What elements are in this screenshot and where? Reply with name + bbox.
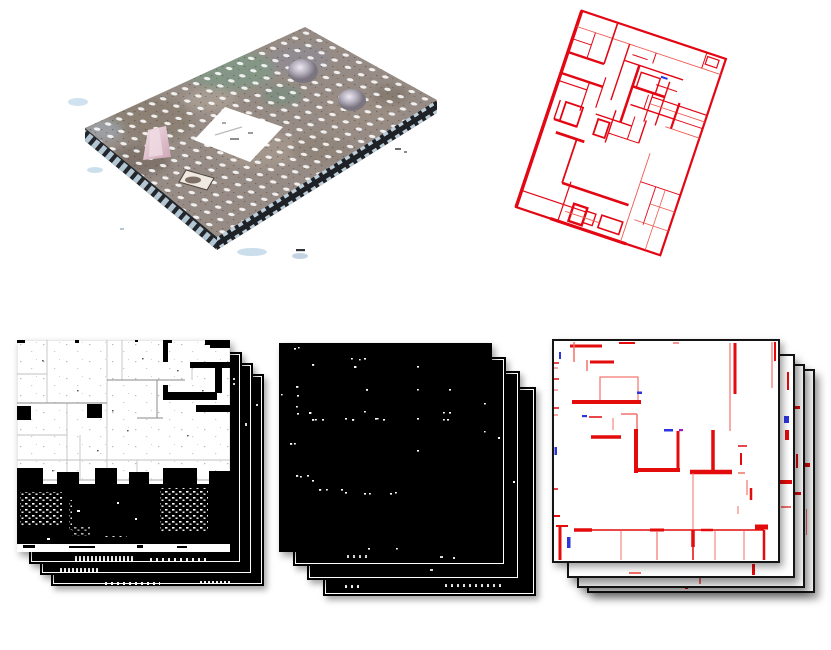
white-speckles: [150, 558, 210, 561]
red-wall-mark: [752, 564, 755, 575]
white-points: [513, 481, 515, 483]
white-points: [440, 556, 443, 558]
density-map-drawing: [17, 340, 230, 552]
red-wall-mark: [806, 509, 808, 535]
red-wall-mark: [785, 430, 789, 440]
white-speckles: [200, 581, 230, 584]
white-points: [347, 555, 369, 558]
purple-marker: [679, 429, 683, 431]
white-points: [498, 437, 500, 439]
white-speckles: [105, 582, 160, 585]
figure-canvas: [0, 0, 831, 650]
white-speckles: [233, 377, 235, 385]
floorplan-walls: [516, 11, 726, 256]
sparse-sheet-front: [279, 343, 492, 552]
black-square-mid: [87, 404, 102, 418]
red-wall-mark: [629, 572, 641, 574]
black-square-left: [17, 406, 31, 420]
red-wall-mark: [796, 454, 799, 468]
white-speckles: [60, 568, 100, 572]
white-points: [430, 569, 433, 571]
white-points: [445, 584, 503, 587]
red-wall-mark: [779, 480, 792, 484]
blue-marker: [784, 416, 789, 423]
sparse-map-drawing: [279, 343, 492, 552]
density-sheet-front: [17, 340, 230, 552]
floorplan-panel: [480, 0, 831, 285]
red-wall-mark: [787, 372, 790, 390]
white-points: [345, 585, 363, 588]
white-speckles: [245, 423, 247, 426]
wall-sheet-front: [552, 339, 780, 563]
blue-markers: [555, 352, 674, 548]
white-speckles: [256, 404, 258, 406]
red-wall-mark: [781, 506, 791, 508]
red-walls: [554, 342, 775, 560]
wall-map-drawing: [554, 341, 778, 561]
point-cloud-panel: [0, 0, 470, 285]
white-points: [453, 557, 455, 559]
white-speckles: [75, 556, 133, 562]
